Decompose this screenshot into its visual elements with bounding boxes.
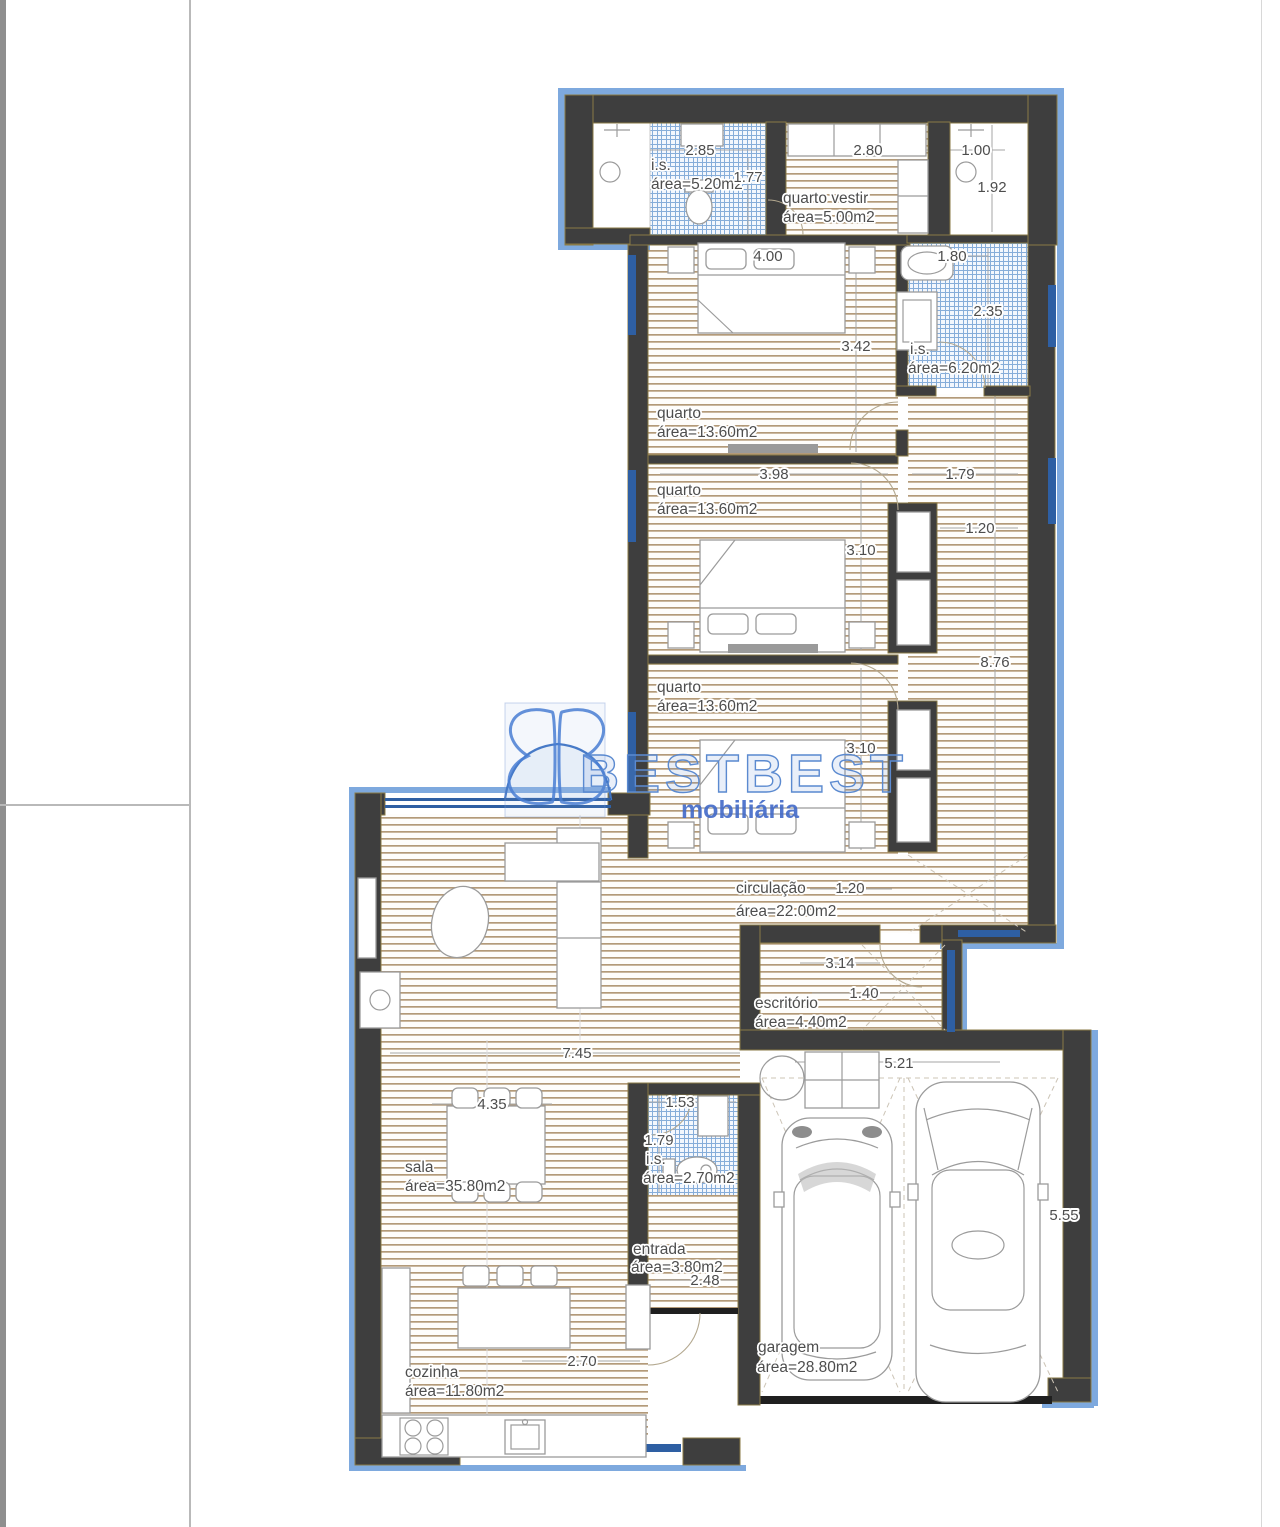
room-label-garagem-name: garagem <box>758 1339 819 1356</box>
room-label-quarto2-area: área=13.60m2 <box>657 501 757 518</box>
room-label-vestir-name: quarto vestir <box>783 190 868 207</box>
watermark-subtitle-text: mobiliária <box>681 796 800 824</box>
room-label-is520-name: i.s. <box>651 157 671 174</box>
kitchen-island-icon <box>458 1266 570 1348</box>
room-label-is620-area: área=6.20m2 <box>908 360 1000 377</box>
dim-circ-w: 1.20 <box>835 880 864 897</box>
fireplace-icon <box>360 972 400 1028</box>
dim-shower-h: 1.92 <box>977 179 1006 196</box>
dim-q1-h: 3.42 <box>841 338 870 355</box>
room-label-sala-area: área=35.80m2 <box>405 1178 505 1195</box>
dim-mesa-w: 4.35 <box>477 1096 506 1113</box>
tv-icon-1 <box>728 444 818 453</box>
room-label-cozinha-area: área=11.80m2 <box>405 1383 504 1400</box>
circulacao-window <box>958 930 1020 937</box>
room-label-quarto3-name: quarto <box>657 679 701 696</box>
is620-window <box>1048 285 1056 347</box>
room-label-cozinha-name: cozinha <box>405 1364 459 1381</box>
sink-icon-3 <box>698 1096 728 1136</box>
room-label-quarto1-name: quarto <box>657 405 701 422</box>
dim-is270-w: 1.53 <box>665 1094 694 1111</box>
room-label-escritorio-name: escritório <box>755 995 818 1012</box>
room-label-circulacao-area: área=22.00m2 <box>736 903 836 920</box>
radiator-icon <box>358 878 376 958</box>
room-label-garagem-area: área=28.80m2 <box>757 1359 857 1376</box>
quarto1-window <box>628 255 636 335</box>
room-label-is620-name: i.s. <box>910 341 930 358</box>
dim-q1-bed-w: 4.00 <box>753 248 782 265</box>
dim-vestir-w: 2.80 <box>853 142 882 159</box>
dim-shower-w: 1.00 <box>961 142 990 159</box>
utility-box <box>626 1285 650 1349</box>
dim-gar-w: 5.21 <box>884 1055 913 1072</box>
dim-is620-w: 1.80 <box>937 248 966 265</box>
room-label-is520-area: área=5.20m2 <box>651 176 743 193</box>
room-label-quarto1-area: área=13.60m2 <box>657 424 757 441</box>
dim-gar-h: 5.55 <box>1049 1207 1078 1224</box>
dim-is520-door: 1.77 <box>733 169 762 186</box>
room-label-entrada-name: entrada <box>633 1241 686 1258</box>
quarto2-window <box>628 470 636 542</box>
room-label-is270-name: i.s. <box>646 1151 666 1168</box>
kitchen-sink-icon <box>505 1420 545 1455</box>
dim-coz-w: 2.70 <box>567 1353 596 1370</box>
floor-plan: i.s. área=5.20m2 quarto vestir área=5.00… <box>0 0 1280 1527</box>
room-label-circulacao-name: circulação <box>736 880 806 897</box>
circulacao-floor <box>630 855 1030 933</box>
room-label-quarto3-area: área=13.60m2 <box>657 698 757 715</box>
dim-ward-door: 1.20 <box>965 520 994 537</box>
shower-left-floor <box>592 122 650 235</box>
room-label-quarto2-name: quarto <box>657 482 701 499</box>
dim-corr-h: 8.76 <box>980 654 1009 671</box>
dim-corr-top-w: 1.79 <box>945 466 974 483</box>
room-label-vestir-area: área=5.00m2 <box>783 209 875 226</box>
corridor-window <box>1048 458 1056 524</box>
watermark-brand-text: BESTBEST <box>580 744 908 804</box>
dim-q2-bed-h: 3.10 <box>846 542 875 559</box>
dim-is520-w: 2.85 <box>685 142 714 159</box>
dim-q2-w: 3.98 <box>759 466 788 483</box>
car-icon-2 <box>908 1082 1048 1402</box>
room-label-is270-area: área=2.70m2 <box>643 1170 735 1187</box>
hall-floor <box>648 930 740 1085</box>
dim-is620-h: 2.35 <box>973 303 1002 320</box>
escritorio-window <box>947 950 955 1032</box>
entrada-door-swing <box>648 1313 700 1365</box>
dim-esc-h: 1.40 <box>849 985 878 1002</box>
dim-sala-w: 7.45 <box>562 1045 591 1062</box>
dim-circ-len: 3.14 <box>825 955 854 972</box>
tv-icon-2 <box>728 644 818 653</box>
storage-grid-icon <box>805 1052 879 1108</box>
room-label-escritorio-area: área=4.40m2 <box>755 1014 847 1031</box>
dim-ent-w: 2.48 <box>690 1272 719 1289</box>
pdf-page: i.s. área=5.20m2 quarto vestir área=5.00… <box>0 0 1280 1527</box>
room-label-sala-name: sala <box>405 1159 434 1176</box>
dim-is270-h: 1.79 <box>644 1132 673 1149</box>
